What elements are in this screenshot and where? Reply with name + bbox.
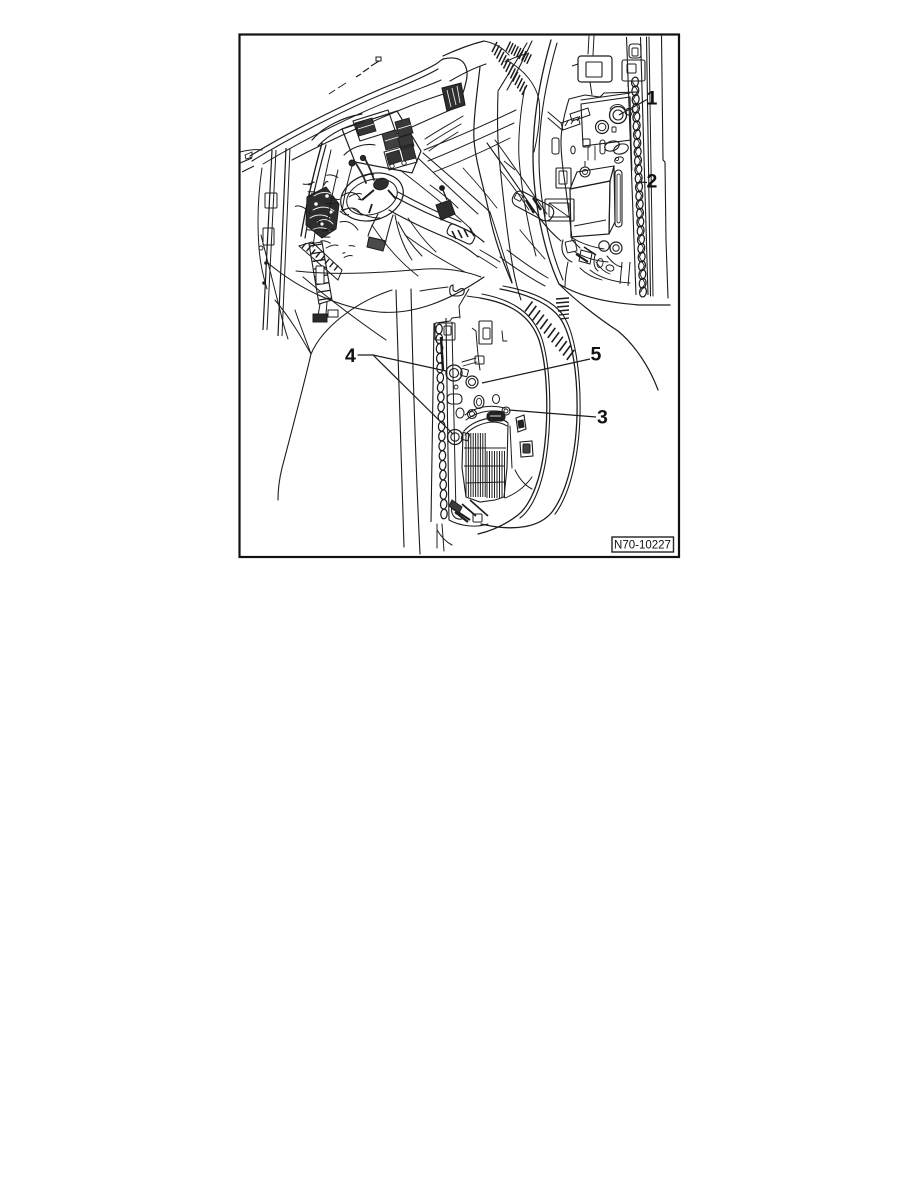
svg-text:5: 5 (591, 344, 602, 366)
svg-text:N70-10227: N70-10227 (614, 540, 671, 552)
svg-text:2: 2 (647, 171, 658, 193)
svg-text:1: 1 (647, 88, 658, 110)
svg-text:4: 4 (345, 345, 356, 367)
svg-text:3: 3 (597, 407, 608, 429)
